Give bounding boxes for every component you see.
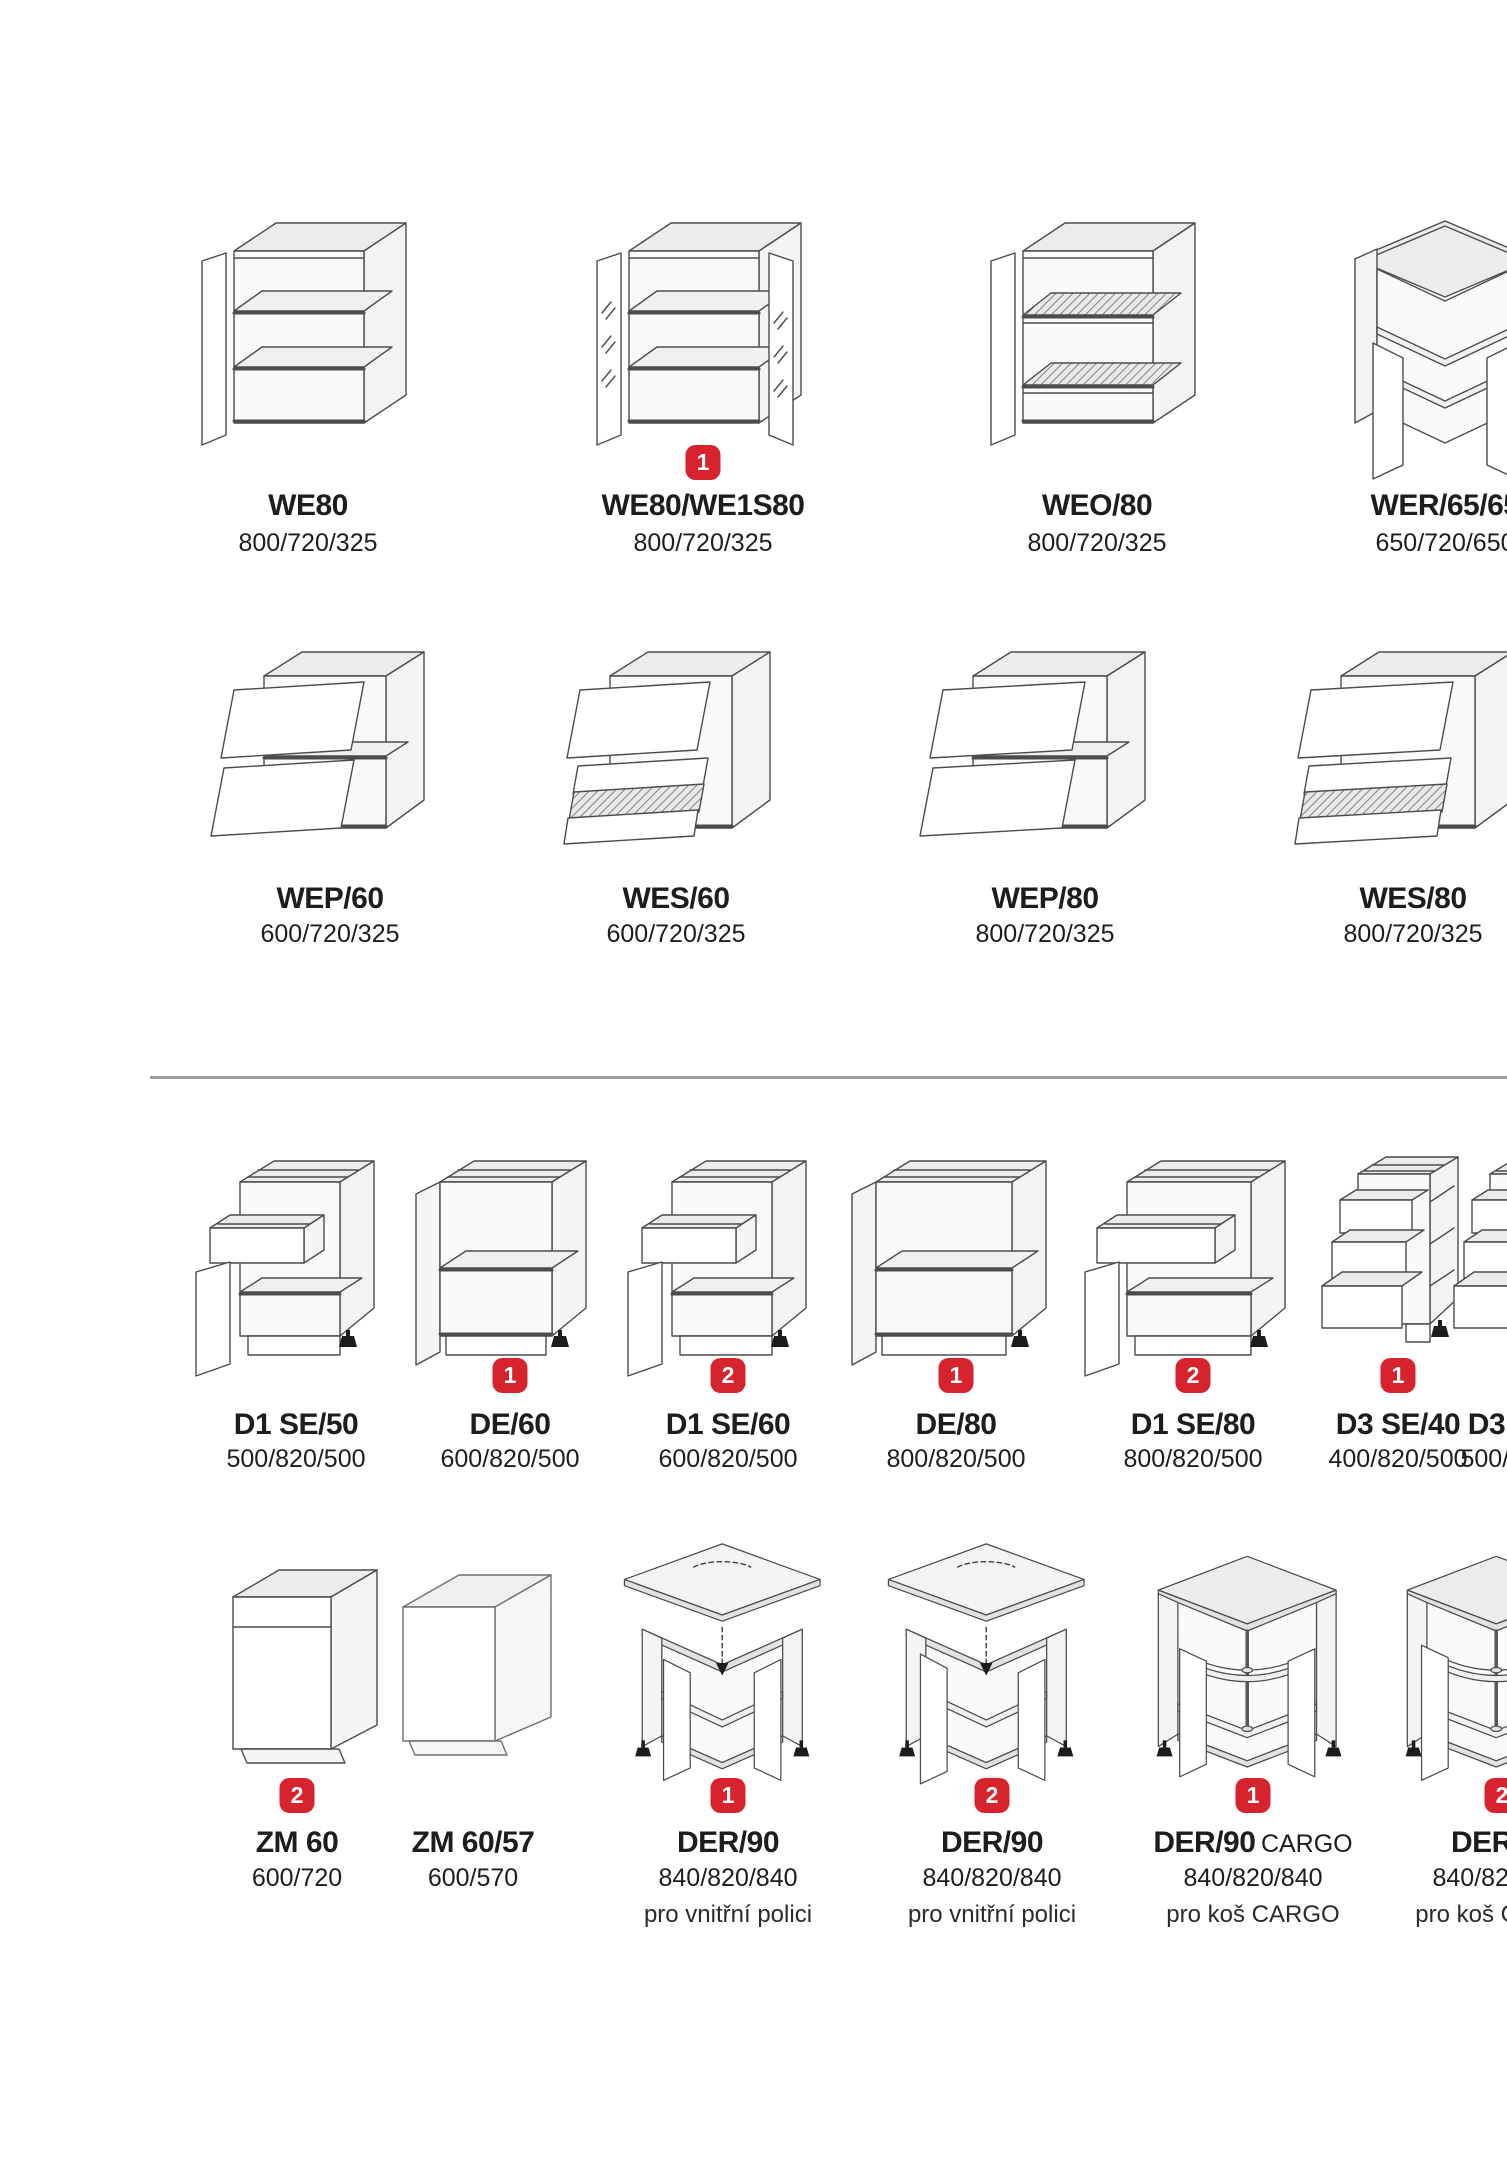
variant-badge: 1 <box>493 1358 528 1393</box>
product-model: DE/60 <box>390 1407 630 1443</box>
product-dimensions: 840/820/840 <box>588 1863 868 1893</box>
product-note: pro vnitřní polici <box>588 1901 868 1929</box>
wall-cabinet-glass-doors-icon <box>573 195 833 485</box>
corner-base-carousel-icon <box>1386 1535 1507 1775</box>
product-model: D3 SE/50 <box>1410 1407 1507 1443</box>
badge-number: 2 <box>986 1782 999 1808</box>
cabinet-illustration <box>1073 1140 1313 1355</box>
cabinet-illustration <box>588 1535 868 1775</box>
cabinet-illustration <box>333 1535 613 1775</box>
corner-base-cabinet-icon <box>876 1535 1107 1775</box>
product-card: 2 DER/90 840/820/840 pro vnitřní polici <box>852 1535 1132 1775</box>
product-model: DER/90 CARGO <box>1113 1825 1393 1862</box>
variant-badge: 2 <box>280 1778 315 1813</box>
product-dimensions: 800/720/325 <box>553 528 853 558</box>
product-model: WEO/80 <box>947 488 1247 524</box>
product-card: WES/80 800/720/325 <box>1263 630 1507 865</box>
product-dimensions: 800/820/500 <box>836 1444 1076 1474</box>
product-model: WER/65/65 <box>1295 488 1507 524</box>
variant-badge: 1 <box>1381 1358 1416 1393</box>
variant-badge: 1 <box>939 1358 974 1393</box>
variant-badge: 1 <box>711 1778 746 1813</box>
badge-number: 1 <box>1247 1782 1260 1808</box>
product-dimensions: 600/720/325 <box>526 919 826 949</box>
badge-number: 2 <box>1496 1782 1507 1808</box>
product-model-suffix: CARGO <box>1261 1830 1353 1858</box>
badge-number: 1 <box>1392 1362 1405 1388</box>
product-card: 2 D1 SE/80 800/820/500 <box>1073 1140 1313 1355</box>
product-dimensions: 600/820/500 <box>390 1444 630 1474</box>
badge-number: 2 <box>722 1362 735 1388</box>
cabinet-illustration <box>947 195 1247 485</box>
product-card: D1 SE/50 500/820/500 <box>176 1140 416 1355</box>
product-card: 1 DER/90 CARGO 840/820/840 pro koš CARGO <box>1113 1535 1393 1775</box>
liftup-door-cabinet-icon <box>915 630 1175 865</box>
product-card: 2 D1 SE/60 600/820/500 <box>608 1140 848 1355</box>
base-cabinet-open-icon <box>390 1140 630 1355</box>
product-dimensions: 840/820/840 <box>852 1863 1132 1893</box>
product-card: WER/65/65 650/720/650 <box>1295 195 1507 485</box>
cabinet-illustration <box>1410 1140 1507 1355</box>
liftup-door-cabinet-icon <box>200 630 460 865</box>
product-dimensions: 840/820/840 <box>1362 1863 1507 1893</box>
base-cabinet-open-icon <box>836 1140 1076 1355</box>
cabinet-illustration <box>526 630 826 865</box>
cabinet-illustration <box>1113 1535 1393 1775</box>
wall-cabinet-open-shelves-icon <box>178 195 438 485</box>
product-model: WE80 <box>158 488 458 524</box>
badge-number: 1 <box>950 1362 963 1388</box>
cabinet-illustration <box>895 630 1195 865</box>
variant-badge: 1 <box>686 445 721 480</box>
drawer-base-cabinet-icon <box>1430 1140 1507 1355</box>
product-card: WEO/80 800/720/325 <box>947 195 1247 485</box>
product-dimensions: 800/720/325 <box>895 919 1195 949</box>
liftup-glass-rack-cabinet-icon <box>1283 630 1507 865</box>
appliance-housing-57-icon <box>373 1545 573 1775</box>
corner-wall-cabinet-icon <box>1315 195 1507 485</box>
product-dimensions: 840/820/840 <box>1113 1863 1393 1893</box>
product-model: DER/90 <box>1362 1825 1507 1861</box>
product-card: 1 WE80/WE1S80 800/720/325 <box>553 195 853 485</box>
variant-badge: 2 <box>711 1358 746 1393</box>
cabinet-illustration <box>158 195 458 485</box>
badge-number: 1 <box>504 1362 517 1388</box>
product-model: ZM 60/57 <box>333 1825 613 1861</box>
cabinet-illustration <box>176 1140 416 1355</box>
variant-badge: 2 <box>1485 1778 1507 1813</box>
product-model: DE/80 <box>836 1407 1076 1443</box>
cabinet-illustration <box>852 1535 1132 1775</box>
base-cabinet-drawer-door-icon <box>608 1140 848 1355</box>
product-card: 2 DER/90 840/820/840 pro koš CARGO <box>1362 1535 1507 1775</box>
product-dimensions: 600/720/325 <box>180 919 480 949</box>
badge-number: 1 <box>697 449 710 475</box>
product-model: WE80/WE1S80 <box>553 488 853 524</box>
cabinet-illustration <box>836 1140 1076 1355</box>
product-model: DER/90 <box>588 1825 868 1861</box>
product-card: WEP/80 800/720/325 <box>895 630 1195 865</box>
badge-number: 2 <box>1187 1362 1200 1388</box>
product-card: 1 DER/90 840/820/840 pro vnitřní polici <box>588 1535 868 1775</box>
product-dimensions: 800/820/500 <box>1073 1444 1313 1474</box>
variant-badge: 2 <box>975 1778 1010 1813</box>
cabinet-illustration <box>1362 1535 1507 1775</box>
product-note: pro vnitřní polici <box>852 1901 1132 1929</box>
product-model: WEP/80 <box>895 881 1195 917</box>
cabinet-illustration <box>553 195 853 485</box>
product-model: WES/60 <box>526 881 826 917</box>
product-note: pro koš CARGO <box>1362 1901 1507 1929</box>
product-dimensions: 800/720/325 <box>1263 919 1507 949</box>
cabinet-illustration <box>1263 630 1507 865</box>
product-model: D1 SE/50 <box>176 1407 416 1443</box>
corner-base-cabinet-icon <box>612 1535 843 1775</box>
product-dimensions: 500/820/500 <box>176 1444 416 1474</box>
product-model: D1 SE/60 <box>608 1407 848 1443</box>
product-card: ZM 60/57 600/570 <box>333 1535 613 1775</box>
product-card: WE80 800/720/325 <box>158 195 458 485</box>
product-dimensions: 600/570 <box>333 1863 613 1893</box>
wall-cabinet-plate-rack-icon <box>967 195 1227 485</box>
variant-badge: 2 <box>1176 1358 1211 1393</box>
product-card: 1 DE/60 600/820/500 <box>390 1140 630 1355</box>
cabinet-illustration <box>1295 195 1507 485</box>
product-dimensions: 500/820/500 <box>1410 1444 1507 1474</box>
liftup-glass-rack-cabinet-icon <box>546 630 806 865</box>
base-cabinet-drawer-door-icon <box>176 1140 416 1355</box>
product-note: pro koš CARGO <box>1113 1901 1393 1929</box>
product-model: WES/80 <box>1263 881 1507 917</box>
product-card: WEP/60 600/720/325 <box>180 630 480 865</box>
badge-number: 1 <box>722 1782 735 1808</box>
cabinet-illustration <box>608 1140 848 1355</box>
product-model-text: DER/90 <box>1153 1826 1255 1859</box>
product-model: WEP/60 <box>180 881 480 917</box>
product-card: 1 DE/80 800/820/500 <box>836 1140 1076 1355</box>
corner-base-carousel-icon <box>1137 1535 1368 1775</box>
product-model: D1 SE/80 <box>1073 1407 1313 1443</box>
product-card: WES/60 600/720/325 <box>526 630 826 865</box>
cabinet-illustration <box>180 630 480 865</box>
cabinet-illustration <box>390 1140 630 1355</box>
product-model: DER/90 <box>852 1825 1132 1861</box>
variant-badge: 1 <box>1236 1778 1271 1813</box>
product-dimensions: 800/720/325 <box>158 528 458 558</box>
base-cabinet-drawer-door-icon <box>1073 1140 1313 1355</box>
product-dimensions: 600/820/500 <box>608 1444 848 1474</box>
product-dimensions: 800/720/325 <box>947 528 1247 558</box>
section-divider <box>150 1076 1507 1079</box>
product-card: D3 SE/50 500/820/500 <box>1410 1140 1507 1355</box>
product-dimensions: 650/720/650 <box>1295 528 1507 558</box>
badge-number: 2 <box>291 1782 304 1808</box>
